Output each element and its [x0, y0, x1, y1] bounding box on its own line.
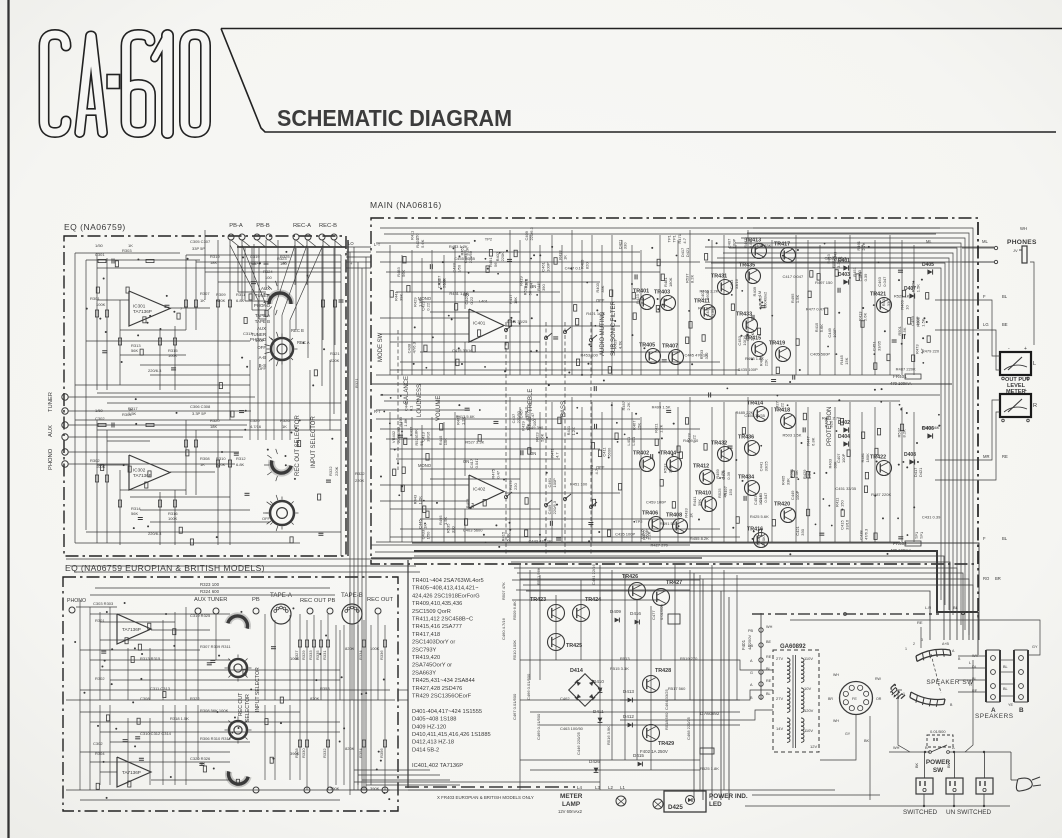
svg-text:A+B: A+B	[942, 642, 949, 646]
svg-text:RE: RE	[1002, 454, 1008, 459]
svg-text:R330: R330	[301, 748, 306, 758]
svg-text:R303: R303	[122, 248, 132, 253]
svg-text:L: L	[1033, 361, 1036, 367]
svg-text:WH: WH	[833, 719, 839, 723]
svg-text:C477: C477	[651, 610, 656, 620]
svg-text:RE: RE	[766, 655, 772, 659]
svg-text:F402 1A 250V: F402 1A 250V	[640, 749, 668, 754]
svg-text:TR428: TR428	[655, 668, 671, 674]
svg-text:UN SWITCHED: UN SWITCHED	[946, 809, 991, 816]
svg-text:MONO: MONO	[418, 296, 432, 301]
svg-text:TR421: TR421	[870, 292, 886, 298]
svg-text:R332: R332	[322, 748, 327, 758]
svg-text:TR405: TR405	[639, 343, 655, 349]
svg-text:0.047: 0.047	[882, 276, 887, 287]
svg-text:BL: BL	[766, 692, 771, 696]
svg-text:1.8K: 1.8K	[403, 418, 408, 427]
svg-text:C435 100P: C435 100P	[615, 532, 635, 537]
svg-text:R487 220K: R487 220K	[896, 366, 916, 371]
svg-text:R321: R321	[330, 351, 340, 356]
svg-text:TR435: TR435	[739, 263, 755, 269]
svg-text:REC OUT SELECTOR: REC OUT SELECTOR	[295, 415, 301, 476]
svg-text:TR417,418: TR417,418	[412, 632, 440, 638]
svg-text:C302: C302	[93, 741, 103, 746]
svg-text:56: 56	[419, 440, 424, 445]
svg-text:LED: LED	[709, 801, 722, 808]
svg-text:OFF: OFF	[258, 366, 267, 371]
svg-text:R312: R312	[236, 456, 246, 461]
svg-text:18K: 18K	[513, 297, 518, 304]
svg-text:TR422: TR422	[870, 455, 886, 461]
svg-text:POWER IND.: POWER IND.	[709, 793, 748, 800]
svg-text:R497 150: R497 150	[815, 280, 833, 285]
svg-text:C311 C313: C311 C313	[150, 686, 171, 691]
svg-text:F: F	[983, 294, 986, 299]
svg-text:R322: R322	[328, 466, 333, 476]
svg-text:TA7136P: TA7136P	[133, 309, 152, 314]
svg-text:TR403: TR403	[654, 290, 670, 296]
svg-text:LG: LG	[983, 322, 989, 327]
svg-text:1: 1	[903, 692, 905, 696]
svg-text:D421: D421	[685, 247, 690, 257]
svg-text:2.2K: 2.2K	[626, 402, 631, 411]
svg-text:BL: BL	[1002, 294, 1008, 299]
svg-text:R469 10: R469 10	[683, 438, 699, 443]
svg-text:5.6K: 5.6K	[540, 433, 545, 442]
svg-text:BR: BR	[828, 697, 833, 701]
svg-text:1/50: 1/50	[95, 408, 104, 413]
svg-text:JV: JV	[1013, 248, 1018, 253]
svg-text:TR414: TR414	[747, 401, 763, 407]
svg-text:2SC1509 QorR: 2SC1509 QorR	[412, 609, 451, 615]
svg-text:PHONO: PHONO	[67, 598, 86, 604]
svg-text:D414 5B-2: D414 5B-2	[412, 747, 439, 753]
svg-text:SW: SW	[933, 767, 944, 774]
svg-text:EQ (NA06759 EUROPIAN & BRITISH: EQ (NA06759 EUROPIAN & BRITISH MODELS)	[65, 563, 265, 573]
svg-text:TR420: TR420	[774, 502, 790, 508]
svg-text:OFF: OFF	[257, 345, 266, 350]
svg-text:560P: 560P	[645, 529, 650, 539]
svg-text:WH: WH	[833, 673, 839, 677]
svg-text:R443 1.2K: R443 1.2K	[449, 244, 468, 249]
svg-text:TR404: TR404	[660, 451, 676, 457]
svg-text:AUX: AUX	[48, 425, 54, 437]
svg-text:15K: 15K	[844, 357, 849, 364]
svg-text:33/16: 33/16	[844, 519, 849, 530]
svg-text:220K: 220K	[330, 358, 340, 363]
svg-text:1.5K: 1.5K	[916, 284, 921, 293]
svg-text:1K: 1K	[128, 243, 133, 248]
svg-text:33/25: 33/25	[764, 461, 769, 472]
svg-text:6.8K: 6.8K	[811, 437, 816, 446]
svg-text:TR436: TR436	[738, 435, 754, 441]
svg-text:C405 560P: C405 560P	[810, 351, 830, 356]
svg-text:5600: 5600	[705, 290, 710, 300]
svg-text:D425: D425	[668, 804, 683, 811]
svg-text:R333: R333	[308, 650, 313, 660]
svg-text:D402: D402	[838, 420, 850, 426]
svg-text:TR401~404 2SA763WL4or5: TR401~404 2SA763WL4or5	[412, 578, 484, 584]
svg-text:1K: 1K	[200, 462, 205, 467]
svg-text:TUNER: TUNER	[48, 392, 54, 412]
svg-text:110V: 110V	[804, 728, 813, 733]
svg-text:R510 100K: R510 100K	[512, 640, 517, 660]
svg-text:150: 150	[840, 499, 845, 506]
svg-text:100P: 100P	[915, 316, 920, 326]
svg-text:L1: L1	[620, 785, 625, 790]
svg-text:R507 47K: R507 47K	[501, 582, 506, 600]
svg-text:424,426 2SC1918EorForG: 424,426 2SC1918EorForG	[412, 593, 480, 599]
svg-text:ON: ON	[463, 459, 469, 464]
svg-text:R326: R326	[280, 418, 290, 423]
svg-text:C461 22/16: C461 22/16	[591, 564, 596, 585]
svg-text:BK: BK	[947, 762, 951, 768]
svg-text:R519 270: R519 270	[680, 656, 698, 661]
svg-text:F: F	[983, 536, 986, 541]
svg-text:33K: 33K	[600, 285, 605, 292]
svg-text:TR429: TR429	[658, 741, 674, 747]
svg-text:R405 33K: R405 33K	[754, 243, 772, 248]
svg-text:3.3P 5P: 3.3P 5P	[192, 411, 206, 416]
svg-text:2SC793Y: 2SC793Y	[412, 647, 437, 653]
svg-text:1/50: 1/50	[425, 531, 430, 540]
svg-text:27V: 27V	[776, 656, 783, 661]
svg-text:100P: 100P	[546, 262, 551, 272]
svg-text:PB-B: PB-B	[256, 223, 270, 229]
svg-text:D412,413 HZ-18: D412,413 HZ-18	[412, 740, 454, 746]
svg-text:C462: C462	[560, 696, 570, 701]
svg-text:100P: 100P	[841, 453, 846, 463]
svg-text:R302: R302	[95, 676, 105, 681]
svg-text:R304: R304	[95, 751, 105, 756]
svg-text:22K: 22K	[763, 359, 768, 366]
svg-text:TR402: TR402	[633, 451, 649, 457]
svg-text:R308: R308	[200, 456, 210, 461]
svg-text:D401-404,417~424 1S1555: D401-404,417~424 1S1555	[412, 709, 482, 715]
svg-text:BL: BL	[766, 667, 771, 671]
svg-text:5.6K: 5.6K	[420, 239, 425, 248]
svg-text:R313 R315: R313 R315	[140, 656, 161, 661]
svg-text:C305 C307: C305 C307	[190, 239, 211, 244]
svg-text:SPEAKERS: SPEAKERS	[975, 713, 1013, 720]
svg-text:330: 330	[668, 466, 673, 473]
svg-text:4.7: 4.7	[555, 452, 560, 458]
svg-text:330: 330	[886, 299, 891, 306]
svg-text:L4: L4	[577, 785, 582, 790]
svg-text:R513: R513	[620, 656, 630, 661]
svg-text:TR429 2SC1356OEorF: TR429 2SC1356OEorF	[412, 694, 472, 700]
svg-text:R323 100: R323 100	[200, 582, 220, 587]
svg-text:TR425: TR425	[566, 643, 582, 649]
svg-text:2: 2	[913, 642, 915, 646]
svg-text:R479 220: R479 220	[922, 349, 940, 354]
svg-text:390K: 390K	[330, 786, 340, 791]
svg-text:1K: 1K	[722, 493, 727, 498]
svg-text:R308 56K 100K: R308 56K 100K	[200, 708, 229, 713]
svg-text:2.2K: 2.2K	[750, 332, 755, 341]
svg-text:R483 56K: R483 56K	[922, 425, 940, 430]
svg-text:1: 1	[905, 647, 907, 651]
svg-text:BALANCE: BALANCE	[404, 376, 410, 404]
svg-text:L-T: L-T	[374, 242, 381, 247]
svg-text:10: 10	[904, 305, 909, 310]
svg-text:B: B	[925, 745, 928, 750]
svg-text:WH: WH	[1020, 226, 1027, 231]
svg-text:ON: ON	[530, 284, 536, 289]
svg-text:RW: RW	[875, 677, 882, 681]
svg-text:39K: 39K	[697, 499, 702, 506]
svg-text:R331: R331	[322, 650, 327, 660]
svg-text:TAPE-A: TAPE-A	[270, 592, 293, 599]
svg-text:MONO: MONO	[418, 463, 432, 468]
svg-text:R302: R302	[90, 458, 100, 463]
svg-text:REC B: REC B	[291, 328, 304, 333]
svg-text:YE: YE	[1008, 703, 1014, 707]
svg-text:0.047: 0.047	[474, 458, 479, 469]
svg-text:100P: 100P	[832, 328, 837, 338]
svg-text:33/16: 33/16	[426, 431, 431, 442]
svg-text:820K: 820K	[216, 298, 226, 303]
svg-text:1K: 1K	[200, 298, 205, 303]
svg-text:D409 HZ-120: D409 HZ-120	[412, 724, 446, 730]
svg-text:TA7136P: TA7136P	[122, 627, 141, 632]
svg-text:PB: PB	[748, 629, 754, 633]
svg-text:B: B	[1019, 707, 1024, 714]
svg-text:33P 5P: 33P 5P	[192, 246, 205, 251]
svg-text:10V: 10V	[804, 686, 811, 691]
svg-text:GY: GY	[1032, 645, 1038, 649]
svg-text:TP2: TP2	[485, 237, 493, 242]
svg-text:200KBx2: 200KBx2	[396, 426, 401, 443]
svg-text:47/6.3: 47/6.3	[411, 341, 416, 353]
svg-text:1K: 1K	[282, 424, 287, 429]
svg-text:TREBLE: TREBLE	[528, 389, 534, 412]
svg-text:220/6.3: 220/6.3	[529, 226, 534, 240]
svg-text:TR431: TR431	[711, 274, 727, 280]
svg-text:D403: D403	[838, 272, 850, 278]
svg-text:C415 33/16: C415 33/16	[452, 348, 473, 353]
svg-text:L401: L401	[631, 436, 636, 446]
svg-text:R477 0.47: R477 0.47	[806, 306, 825, 311]
svg-text:R322: R322	[355, 471, 365, 476]
svg-text:R491 56: R491 56	[660, 521, 676, 526]
svg-text:56: 56	[493, 262, 498, 267]
svg-text:SWITCHED: SWITCHED	[903, 809, 937, 816]
svg-text:18K: 18K	[413, 429, 418, 436]
svg-text:1/50: 1/50	[95, 243, 104, 248]
svg-text:D404: D404	[838, 434, 850, 440]
svg-text:AUDIO MUTING: AUDIO MUTING	[600, 311, 606, 356]
svg-text:C319 R325: C319 R325	[190, 613, 211, 618]
svg-text:L3: L3	[595, 785, 600, 790]
svg-text:C306 C308: C306 C308	[190, 404, 211, 409]
svg-text:0.1: 0.1	[409, 405, 414, 411]
svg-text:R421 1.2K: R421 1.2K	[586, 311, 605, 316]
svg-text:820K: 820K	[310, 696, 320, 701]
svg-text:TR409,410,435,436: TR409,410,435,436	[412, 601, 462, 607]
svg-text:D421: D421	[918, 467, 923, 477]
svg-text:R329: R329	[301, 650, 306, 660]
svg-text:BK: BK	[915, 762, 919, 768]
svg-text:1K: 1K	[282, 260, 287, 265]
svg-text:TR419,420: TR419,420	[412, 655, 440, 661]
svg-text:100K: 100K	[96, 302, 106, 307]
svg-text:R413 5.6K: R413 5.6K	[456, 414, 475, 419]
svg-text:TR433: TR433	[736, 312, 752, 318]
svg-text:D410: D410	[593, 679, 604, 684]
svg-text:TR425,431~434 2SA844: TR425,431~434 2SA844	[412, 678, 475, 684]
svg-text:GA60892: GA60892	[780, 644, 806, 650]
svg-text:1K: 1K	[562, 255, 567, 260]
svg-text:C451 33/35: C451 33/35	[835, 486, 856, 491]
svg-text:REC-A: REC-A	[293, 223, 311, 229]
svg-text:TP1: TP1	[671, 234, 676, 242]
svg-text:R304: R304	[122, 412, 132, 417]
svg-text:R: R	[1033, 403, 1037, 409]
svg-text:D408: D408	[904, 452, 916, 458]
svg-text:C455 10/35: C455 10/35	[744, 413, 765, 418]
svg-text:390: 390	[541, 283, 546, 290]
svg-text:0.22: 0.22	[780, 402, 785, 411]
svg-text:18K: 18K	[525, 423, 530, 430]
svg-text:R309: R309	[216, 292, 226, 297]
svg-text:0.39: 0.39	[710, 308, 715, 317]
svg-text:27V: 27V	[776, 696, 783, 701]
svg-text:C313: C313	[243, 331, 253, 336]
svg-text:6.8K: 6.8K	[236, 462, 245, 467]
svg-text:R487 220K: R487 220K	[871, 492, 891, 497]
svg-text:PB: PB	[748, 644, 754, 648]
svg-text:R325: R325	[280, 254, 290, 259]
svg-text:220K: 220K	[500, 252, 505, 262]
svg-text:0.22: 0.22	[425, 302, 430, 311]
svg-text:TR406: TR406	[642, 511, 658, 517]
svg-text:R324 600: R324 600	[200, 589, 220, 594]
svg-text:0.39: 0.39	[726, 471, 731, 480]
svg-text:GY: GY	[845, 732, 851, 736]
svg-text:AUX TUNER: AUX TUNER	[194, 597, 227, 603]
svg-text:56K: 56K	[131, 511, 138, 516]
svg-text:330: 330	[800, 528, 805, 535]
svg-text:WH: WH	[893, 746, 900, 750]
svg-text:R336: R336	[379, 650, 384, 660]
svg-text:220/6.3: 220/6.3	[552, 500, 557, 514]
svg-text:A: A	[952, 745, 955, 750]
svg-text:OFF: OFF	[262, 516, 271, 521]
svg-text:56K: 56K	[401, 269, 406, 276]
svg-text:100P: 100P	[552, 478, 557, 488]
svg-text:R516 3.9K: R516 3.9K	[606, 726, 611, 745]
svg-text:100P: 100P	[255, 338, 265, 343]
svg-text:MAIN (NA06816): MAIN (NA06816)	[370, 200, 442, 210]
svg-text:1K: 1K	[689, 513, 694, 518]
svg-text:820: 820	[585, 262, 590, 269]
svg-text:220: 220	[513, 483, 518, 490]
svg-text:TR405~408,413,414,421~: TR405~408,413,414,421~	[412, 586, 479, 592]
svg-text:1M: 1M	[757, 291, 762, 297]
svg-text:TR407: TR407	[662, 344, 678, 350]
svg-text:TR410: TR410	[695, 491, 711, 497]
svg-text:L2: L2	[608, 785, 613, 790]
svg-text:C467 0.01/500: C467 0.01/500	[512, 693, 517, 720]
svg-text:12V 60mAx2: 12V 60mAx2	[558, 809, 583, 814]
svg-text:D414: D414	[570, 668, 583, 674]
svg-text:2SC1403DorY or: 2SC1403DorY or	[412, 640, 455, 646]
svg-text:R310: R310	[216, 456, 226, 461]
svg-text:C303 R303: C303 R303	[93, 601, 114, 606]
svg-text:A-B: A-B	[259, 355, 266, 360]
svg-text:G: G	[750, 671, 753, 675]
svg-text:R-T: R-T	[374, 409, 381, 414]
svg-text:180K: 180K	[865, 453, 870, 463]
svg-text:100K: 100K	[370, 646, 380, 651]
svg-text:R353: R353	[320, 686, 330, 691]
svg-text:220K: 220K	[355, 478, 365, 483]
svg-text:R527 3.3K: R527 3.3K	[465, 440, 484, 445]
svg-text:1.5K: 1.5K	[920, 318, 925, 327]
svg-text:14V: 14V	[776, 726, 783, 731]
svg-text:R425 5.6K: R425 5.6K	[750, 514, 769, 519]
svg-text:0.39: 0.39	[863, 273, 868, 282]
svg-text:R499 1.5K: R499 1.5K	[652, 404, 671, 409]
svg-text:TR434: TR434	[738, 475, 754, 481]
svg-text:2SA663Y: 2SA663Y	[412, 670, 436, 676]
svg-text:C460 4.7/16: C460 4.7/16	[501, 617, 506, 640]
svg-text:110V: 110V	[804, 656, 813, 661]
svg-text:SELECTOR: SELECTOR	[245, 694, 251, 722]
svg-text:OFF: OFF	[596, 465, 605, 470]
svg-text:C459 100P: C459 100P	[646, 500, 666, 505]
svg-text:TR411,412 2SC458B~C: TR411,412 2SC458B~C	[412, 617, 473, 623]
svg-text:56: 56	[527, 290, 532, 295]
svg-text:TR417: TR417	[774, 242, 790, 248]
svg-text:IC402: IC402	[473, 487, 486, 492]
svg-text:PHONES: PHONES	[1007, 239, 1037, 246]
svg-text:5.6K: 5.6K	[819, 324, 824, 333]
svg-text:REC OUT: REC OUT	[238, 692, 244, 716]
svg-text:100P: 100P	[795, 490, 800, 500]
svg-text:RE: RE	[917, 620, 923, 625]
svg-text:33/16: 33/16	[734, 278, 739, 289]
svg-text:15K: 15K	[636, 423, 641, 430]
svg-text:15K: 15K	[442, 278, 447, 285]
svg-text:OR: OR	[876, 697, 882, 701]
svg-text:5.6K: 5.6K	[863, 312, 868, 321]
svg-text:100K: 100K	[168, 516, 178, 521]
svg-text:C302: C302	[95, 416, 105, 421]
svg-text:R509 6.8K: R509 6.8K	[512, 601, 517, 620]
svg-text:+: +	[1024, 346, 1027, 352]
svg-text:3.3K: 3.3K	[836, 259, 841, 268]
svg-text:REC OUT PB: REC OUT PB	[300, 598, 335, 604]
svg-text:1K: 1K	[422, 524, 427, 529]
svg-text:R301: R301	[90, 296, 100, 301]
svg-text:ML: ML	[982, 239, 988, 244]
svg-text:100K: 100K	[168, 353, 178, 358]
svg-text:47/6.3: 47/6.3	[523, 407, 528, 419]
svg-text:220/6.3: 220/6.3	[148, 531, 162, 536]
svg-text:D416: D416	[630, 611, 641, 616]
svg-text:2SA745OorY or: 2SA745OorY or	[412, 663, 452, 669]
svg-text:820: 820	[829, 420, 834, 427]
svg-text:R307: R307	[200, 291, 210, 296]
svg-text:330: 330	[704, 352, 709, 359]
svg-text:R320: R320	[210, 418, 220, 423]
svg-text:0.22: 0.22	[469, 296, 474, 305]
svg-text:MR: MR	[983, 454, 990, 459]
svg-text:4.7/16: 4.7/16	[250, 424, 262, 429]
svg-text:39K: 39K	[398, 293, 403, 300]
